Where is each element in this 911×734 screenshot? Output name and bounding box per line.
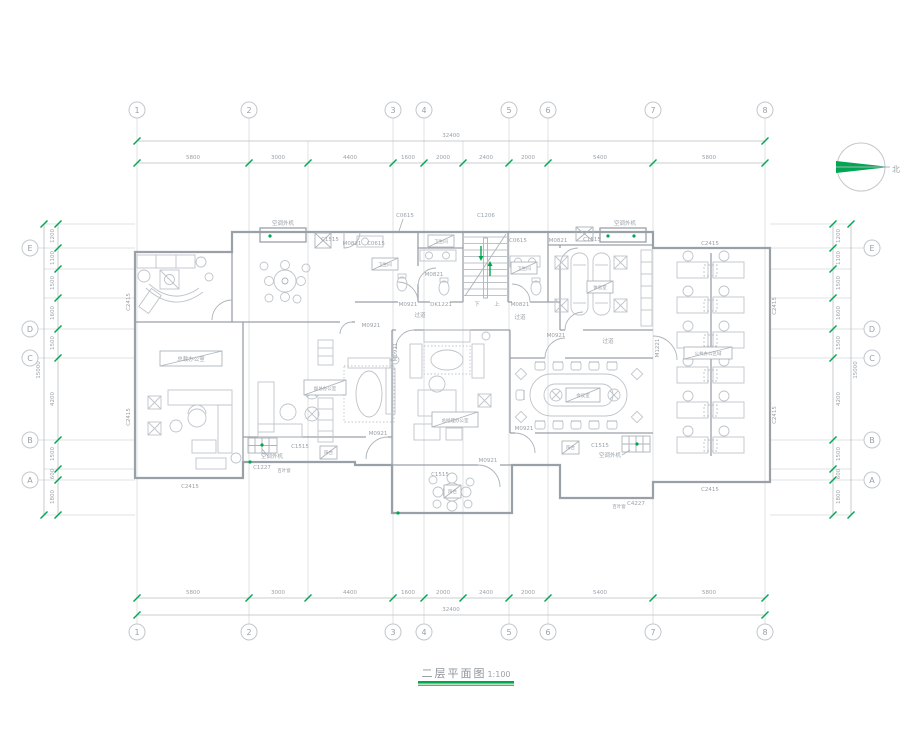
dim-label: 5800 (186, 155, 200, 161)
north-label: 北 (892, 165, 900, 174)
dim-label: 3000 (271, 155, 285, 161)
door-label: M0921 (362, 323, 381, 329)
dim-label: 1600 (401, 590, 415, 596)
dim-label: 600 (50, 468, 56, 479)
dim-label: 1500 (50, 336, 56, 350)
room-label: 副总办公室 (314, 385, 337, 392)
grid-bubble: 4 (421, 628, 426, 637)
dimensions-left: 15000 1200 1100 1500 1600 1500 4200 1500… (36, 221, 62, 519)
stair-up-label: 上 (494, 300, 500, 308)
dim-label: 4200 (836, 392, 842, 406)
dim-label: 5800 (702, 155, 716, 161)
title-block: 二层平面图 1:100 (418, 667, 514, 686)
grid-bubbles: 1 2 3 4 5 6 7 8 1 2 3 4 5 6 7 8 E D C B … (22, 102, 880, 640)
president-office-furniture (148, 390, 241, 469)
dim-label: 1500 (836, 276, 842, 290)
dim-label: 2400 (479, 155, 493, 161)
dim-label: 5400 (593, 155, 607, 161)
dim-label: 600 (836, 468, 842, 479)
dim-label: 1200 (836, 229, 842, 243)
room-tag-toilet-3: 卫生间 (511, 262, 537, 274)
door-label: M0921 (393, 343, 399, 362)
drawing-title: 二层平面图 (422, 667, 487, 680)
grid-bubble: 8 (762, 106, 767, 115)
room-label: 阳台 (566, 444, 575, 451)
dim-label: 2400 (479, 590, 493, 596)
window-label: C2415 (701, 241, 719, 247)
room-tag-lounge: 休息室 (587, 281, 613, 293)
window-label: C1515 (431, 472, 449, 478)
grid-bubble: 4 (421, 106, 426, 115)
corridor-label: 过道 (414, 311, 426, 319)
dim-label: 1200 (50, 229, 56, 243)
dim-label: 5400 (593, 590, 607, 596)
dimensions-right: 15000 1200 1100 1500 1600 1500 4200 1500… (830, 221, 860, 519)
grid-bubble: B (27, 436, 33, 445)
room-tag-meeting: 会议室 (566, 388, 600, 402)
dim-label: 2000 (436, 155, 450, 161)
grid-lines (38, 118, 864, 624)
window-label: C4227 (627, 501, 645, 507)
room-label: 卫生间 (378, 261, 392, 268)
room-tags: 总裁办公室 副总办公室 总经理办公室 会议室 卫生间 卫生间 卫生间 休息室 公… (160, 235, 732, 498)
room-tag-balcony-left: 阳台 (320, 446, 337, 459)
grid-bubble: 5 (506, 628, 511, 637)
room-label: 公共办公区域 (695, 350, 722, 357)
corridor-label: 过道 (514, 313, 526, 321)
room-label: 卫生间 (517, 265, 531, 272)
grid-bubble: 1 (134, 628, 139, 637)
door-label: M0821 (511, 302, 530, 308)
dim-label: 1500 (50, 276, 56, 290)
grid-bubble: 2 (246, 628, 251, 637)
door-label: M0821 (425, 272, 444, 278)
title-underline-2 (418, 685, 514, 686)
grid-bubble: 6 (545, 106, 550, 115)
ac-label: 空调外机 (614, 219, 637, 227)
room-tag-balcony-right: 阳台 (562, 441, 579, 454)
cad-drawing: 32400 5800 3000 4400 1600 2000 2400 2000… (0, 0, 911, 734)
window-label: C2415 (126, 408, 132, 426)
corridor-label: 过道 (602, 337, 614, 345)
stair-down-label: 下 (474, 301, 480, 308)
room-top-left-furniture (137, 255, 213, 313)
room-label: 会议室 (576, 392, 590, 399)
dim-total-top: 32400 (442, 133, 460, 139)
dim-label: 1800 (50, 490, 56, 504)
ac-platform (260, 228, 306, 242)
window-label: C0615 (396, 213, 414, 219)
grid-bubble: E (27, 244, 32, 253)
window-label: C1227 (253, 465, 271, 471)
ac-label: 空调外机 (599, 451, 622, 459)
window-label: C2415 (701, 487, 719, 493)
staircase (463, 234, 508, 298)
exterior-walls (135, 228, 770, 513)
dim-label: 2000 (436, 590, 450, 596)
dim-label: 1800 (836, 490, 842, 504)
grid-bubble: 7 (650, 106, 655, 115)
window-label: C1206 (477, 213, 495, 219)
louver-label: 百叶窗 (612, 503, 626, 510)
dimensions-top: 32400 5800 3000 4400 1600 2000 2400 2000… (134, 133, 769, 167)
grid-bubble: 8 (762, 628, 767, 637)
room-label: 阳台 (324, 449, 333, 456)
dim-label: 5800 (186, 590, 200, 596)
window-label: C1515 (591, 443, 609, 449)
room-tag-toilet-1: 卫生间 (372, 258, 398, 270)
dim-label: 1500 (836, 336, 842, 350)
room-label: 阳台 (448, 488, 457, 495)
louver-label: 百叶窗 (277, 467, 291, 474)
window-label: C2415 (772, 297, 778, 315)
ac-label: 空调外机 (261, 452, 284, 460)
dim-label: 4400 (343, 590, 357, 596)
room-label: 休息室 (593, 284, 607, 291)
grid-bubble: B (869, 436, 875, 445)
dim-total-bottom: 32400 (442, 607, 460, 613)
grid-bubble: A (869, 476, 875, 485)
window-label: C2415 (772, 406, 778, 424)
dim-total-left: 15000 (36, 361, 42, 379)
door-label: DK1221 (430, 302, 452, 308)
dim-label: 1100 (50, 251, 56, 265)
window-label: C1515 (583, 237, 601, 243)
drawing-scale: 1:100 (487, 670, 510, 679)
window-label: C2415 (181, 484, 199, 490)
grid-bubble: C (27, 354, 33, 363)
door-label: M0821 (549, 238, 568, 244)
door-label: M0921 (399, 302, 418, 308)
dim-label: 1500 (836, 447, 842, 461)
grid-bubble: 7 (650, 628, 655, 637)
window-label: C0615 (367, 241, 385, 247)
room-label: 总经理办公室 (442, 417, 469, 424)
room-tag-balcony-terrace: 阳台 (444, 485, 461, 498)
grid-bubble: 5 (506, 106, 511, 115)
north-arrow: 北 (836, 143, 900, 191)
dim-label: 4200 (50, 392, 56, 406)
grid-bubble: 3 (390, 106, 395, 115)
dim-label: 1500 (50, 447, 56, 461)
dim-label: 4400 (343, 155, 357, 161)
grid-bubble: 3 (390, 628, 395, 637)
room-tag-toilet-2: 卫生间 (428, 235, 454, 247)
dim-label: 2000 (521, 155, 535, 161)
door-label: M0921 (547, 333, 566, 339)
room-label: 总裁办公室 (177, 355, 205, 363)
room-tag-president: 总裁办公室 (160, 351, 222, 366)
grid-bubble: 6 (545, 628, 550, 637)
dim-label: 1600 (50, 306, 56, 320)
dimensions-bottom: 32400 5800 3000 4400 1600 2000 2400 2000… (134, 590, 769, 619)
dim-label: 1100 (836, 251, 842, 265)
grid-bubble: D (27, 325, 33, 334)
grid-bubble: 1 (134, 106, 139, 115)
dim-total-right: 15000 (853, 361, 859, 379)
door-label: M0821 (343, 241, 362, 247)
floor-plan-canvas: 32400 5800 3000 4400 1600 2000 2400 2000… (0, 0, 911, 734)
window-label: C1515 (321, 237, 339, 243)
door-label: M1221 (655, 339, 661, 358)
grid-bubble: E (869, 244, 874, 253)
window-label: C2415 (126, 293, 132, 311)
dim-label: 1600 (836, 306, 842, 320)
window-label: C1515 (291, 444, 309, 450)
room-tag-general-manager: 总经理办公室 (432, 412, 478, 427)
grid-bubble: A (27, 476, 33, 485)
room-tag-vice-president: 副总办公室 (304, 380, 346, 395)
ac-label: 空调外机 (272, 219, 295, 227)
dim-label: 5800 (702, 590, 716, 596)
room-tag-open-office: 公共办公区域 (684, 347, 732, 359)
door-label: M0921 (479, 458, 498, 464)
grid-bubble: 2 (246, 106, 251, 115)
door-label: M0921 (515, 426, 534, 432)
lobby-table-set (260, 261, 310, 304)
room-label: 卫生间 (434, 238, 448, 245)
grid-bubble: D (869, 325, 875, 334)
dim-label: 2000 (521, 590, 535, 596)
door-label: M0921 (369, 431, 388, 437)
dim-label: 1600 (401, 155, 415, 161)
title-underline (418, 681, 514, 684)
dim-label: 3000 (271, 590, 285, 596)
grid-bubble: C (869, 354, 875, 363)
window-label: C0615 (509, 238, 527, 244)
